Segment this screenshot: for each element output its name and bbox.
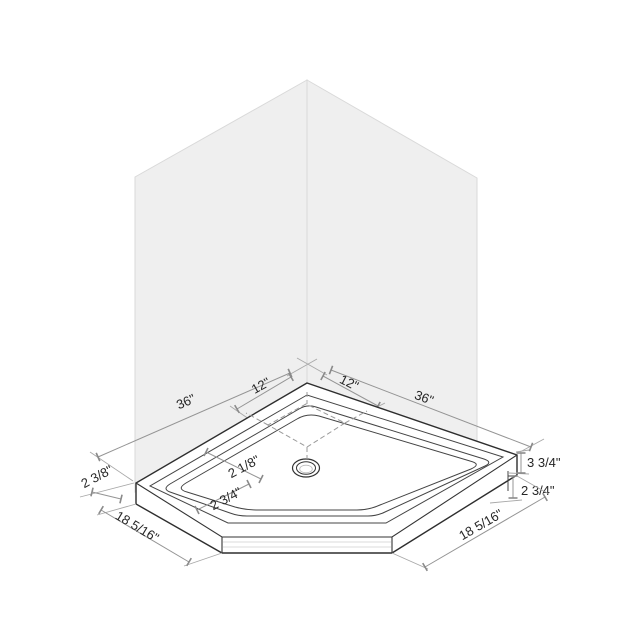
drain-icon xyxy=(293,459,320,477)
wall-right-panel xyxy=(307,80,477,442)
shower-base-dimension-diagram: 36" 12" 12" 36" xyxy=(0,0,640,640)
dim-label-total-height: 3 3/4" xyxy=(527,455,561,470)
dim-label-corner-rim: 2 3/8" xyxy=(78,462,115,491)
dim-label-step-height: 2 3/4" xyxy=(521,483,555,498)
diagram-canvas: 36" 12" 12" 36" xyxy=(0,0,640,640)
dim-corner-rim: 2 3/8" xyxy=(78,462,136,515)
